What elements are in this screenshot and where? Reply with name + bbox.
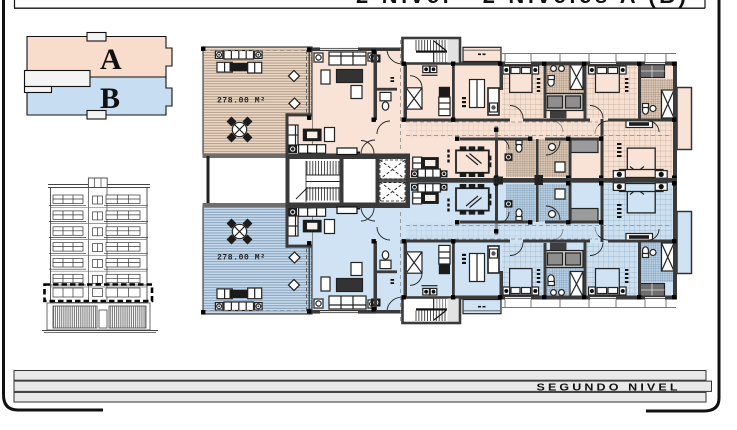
svg-text:278.00 M²: 278.00 M²	[217, 97, 266, 106]
svg-text:B: B	[100, 82, 120, 115]
svg-text:278.00 M²: 278.00 M²	[217, 254, 266, 263]
svg-text:A: A	[100, 43, 122, 76]
svg-text:SEGUNDO NIVEL: SEGUNDO NIVEL	[537, 382, 680, 393]
